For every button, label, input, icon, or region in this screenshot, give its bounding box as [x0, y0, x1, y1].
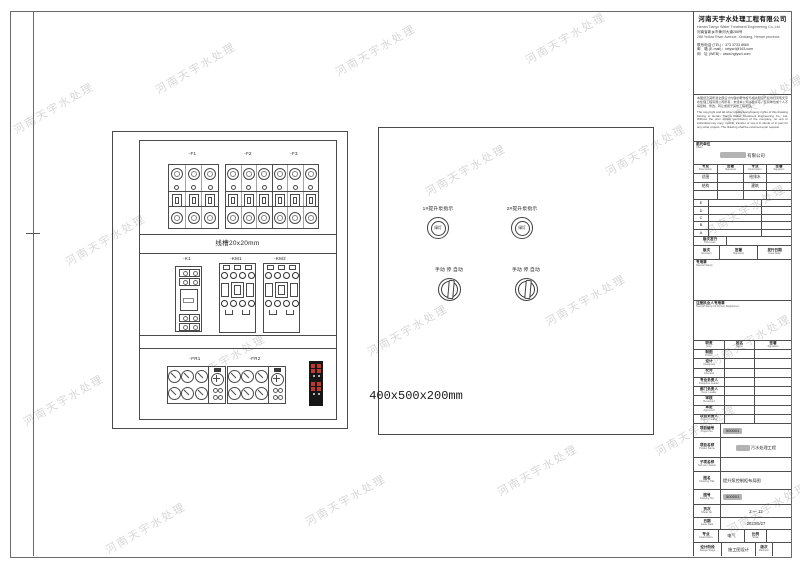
- issue-date: 2023/5/27: [721, 518, 791, 529]
- indicator-light-2: 绿灯: [511, 217, 533, 239]
- green-lens-1: 绿灯: [431, 221, 446, 236]
- table-header: 职责Duty 姓名Name 签署Signature: [694, 341, 791, 350]
- staff-row: 专业负责人Discipline Leader: [694, 378, 791, 387]
- selector-switch-2: [515, 278, 538, 301]
- breaker-f2-f3: [225, 164, 319, 229]
- registered-stamp-area: 注册执业人专用章 Special Stamp Of Person Registe…: [694, 301, 791, 341]
- breaker-f2-label: -F2: [225, 151, 271, 156]
- notice-cn: 本图纸及其所载全部设计内容的著作权与相关知识产权均归河南天宇水处理工程有限公司所…: [697, 97, 788, 109]
- light-2-label: 2#提升泵指示: [499, 205, 545, 212]
- discipline-value: 电气: [718, 530, 744, 542]
- discipline-signature-table: 专业Description 签署Signature 专业Description …: [694, 165, 791, 200]
- sheet-number: 2 — 12: [721, 505, 791, 517]
- copyright-notice: 本图纸及其所载全部设计内容的著作权与相关知识产权均归河南天宇水处理工程有限公司所…: [694, 95, 791, 142]
- drawing-number: 500001: [723, 494, 742, 500]
- wire-duct-band-2: [139, 335, 336, 349]
- design-stage-row: 设计阶段Design Stage 施工图设计 版次Revision: [694, 543, 791, 556]
- revision-row: D: [694, 207, 791, 214]
- revision-row: C: [694, 215, 791, 222]
- staff-row: 审定Approved: [694, 406, 791, 415]
- drawing-title: 提升泵控制柜布局图: [721, 472, 791, 489]
- table-row: 总图 给排水: [694, 174, 791, 183]
- wire-duct-label: 线槽20x20mm: [215, 240, 259, 247]
- date-row: 日期Issue Date 2023/5/27: [694, 518, 791, 530]
- contactor-km2-label: -KM2: [261, 256, 299, 261]
- company-block: 河南天宇水处理工程有限公司 Henan Tianyu Water Treatme…: [694, 11, 791, 95]
- discipline-scale-row: 专业Description 电气 比例Scale: [694, 530, 791, 543]
- indicator-light-1: 绿灯: [427, 217, 449, 239]
- drawing-sheet: 河南天宇水处理河南天宇水处理河南天宇水处理河南天宇水处理河南天宇水处理河南天宇水…: [0, 0, 800, 565]
- selector-switch-1: [438, 278, 461, 301]
- contactor-km1: [219, 263, 256, 333]
- staff-row: 审核Reviewed: [694, 396, 791, 405]
- breaker-f1: [168, 164, 219, 229]
- switch-1-label: 手动 停 自动: [427, 266, 471, 273]
- switch-handle: [447, 280, 455, 299]
- company-address-en: 288 Yellow River Avenue, Xinxiang, Henan…: [697, 35, 788, 40]
- company-name: 河南天宇水处理工程有限公司: [697, 14, 788, 23]
- staff-table: 职责Duty 姓名Name 签署Signature 制图Drawn 设计Desi…: [694, 341, 791, 424]
- project-number: 500001: [723, 428, 742, 434]
- redacted-text: [720, 152, 746, 158]
- power-module: [309, 361, 323, 406]
- drawing-number-row: 图号Drawing No. 500001: [694, 490, 791, 505]
- subitem-row: 子项名称Sub-item Name: [694, 458, 791, 472]
- table-row: [694, 191, 791, 199]
- company-web: 网 址 (WEB)：www.hgtyscl.com: [697, 52, 788, 57]
- revision-row: A: [694, 230, 791, 237]
- breaker-f1-label: -F1: [168, 151, 217, 156]
- project-number-row: 项目编号Project No. 500001: [694, 424, 791, 438]
- breaker-f3-label: -F3: [271, 151, 317, 156]
- contactor-km2: [263, 263, 300, 333]
- relay-k1: [175, 266, 202, 332]
- wire-duct-band: 线槽20x20mm: [139, 234, 336, 254]
- plot-issue-row: 版次发行Plot Issue: [694, 237, 791, 246]
- thermal-relay-fr1: [167, 366, 226, 404]
- switch-2-label: 手动 停 自动: [504, 266, 548, 273]
- project-name: 污水处理工程: [751, 445, 776, 451]
- notice-en: The copyright and all other intellectual…: [697, 111, 788, 130]
- revision-table: E D C B A 版次发行Plot Issue 版次Revision 签署Si…: [694, 200, 791, 260]
- project-name-row: 项目名称Project Name 污水处理工程: [694, 438, 791, 458]
- sheet-number-row: 页次Sheet No. 2 — 12: [694, 505, 791, 518]
- staff-row: 制图Drawn: [694, 350, 791, 359]
- staff-row: 校对Checked: [694, 369, 791, 378]
- staff-row: 设计Designed: [694, 359, 791, 368]
- centering-mark: [26, 233, 40, 234]
- drawing-title-row: 图名Drawing Title 提升泵控制柜布局图: [694, 472, 791, 490]
- client-section: 委托单位 Client 有限公司: [694, 142, 791, 165]
- revision-row: B: [694, 222, 791, 229]
- thermal-fr1-label: -FR1: [166, 356, 224, 361]
- redacted-text: [736, 445, 750, 451]
- design-stage-value: 施工图设计: [721, 543, 755, 556]
- contactor-km1-label: -KM1: [217, 256, 255, 261]
- thermal-fr2-label: -FR2: [226, 356, 284, 361]
- staff-row: 项目负责人Project Leader: [694, 415, 791, 423]
- revision-row: E: [694, 200, 791, 207]
- title-block: 河南天宇水处理工程有限公司 Henan Tianyu Water Treatme…: [693, 11, 791, 556]
- client-name: 有限公司: [696, 152, 789, 159]
- table-row: 结构 建筑: [694, 183, 791, 192]
- staff-row: 部门负责人Dept. Leader: [694, 387, 791, 396]
- relay-k1-label: -K1: [173, 256, 201, 261]
- special-stamp-area: 专用章 Special Stamp: [694, 260, 791, 301]
- table-header: 专业Description 签署Signature 专业Description …: [694, 165, 791, 174]
- light-1-label: 1#提升泵指示: [415, 205, 461, 212]
- revision-header: 版次Revision 签署Signature 发行日期Issue Date: [694, 246, 791, 259]
- switch-handle: [524, 280, 532, 299]
- enclosure-dimensions: 400x500x200mm: [368, 389, 464, 403]
- green-lens-2: 绿灯: [515, 221, 530, 236]
- thermal-relay-fr2: [227, 366, 286, 404]
- frame-left-line: [33, 11, 34, 556]
